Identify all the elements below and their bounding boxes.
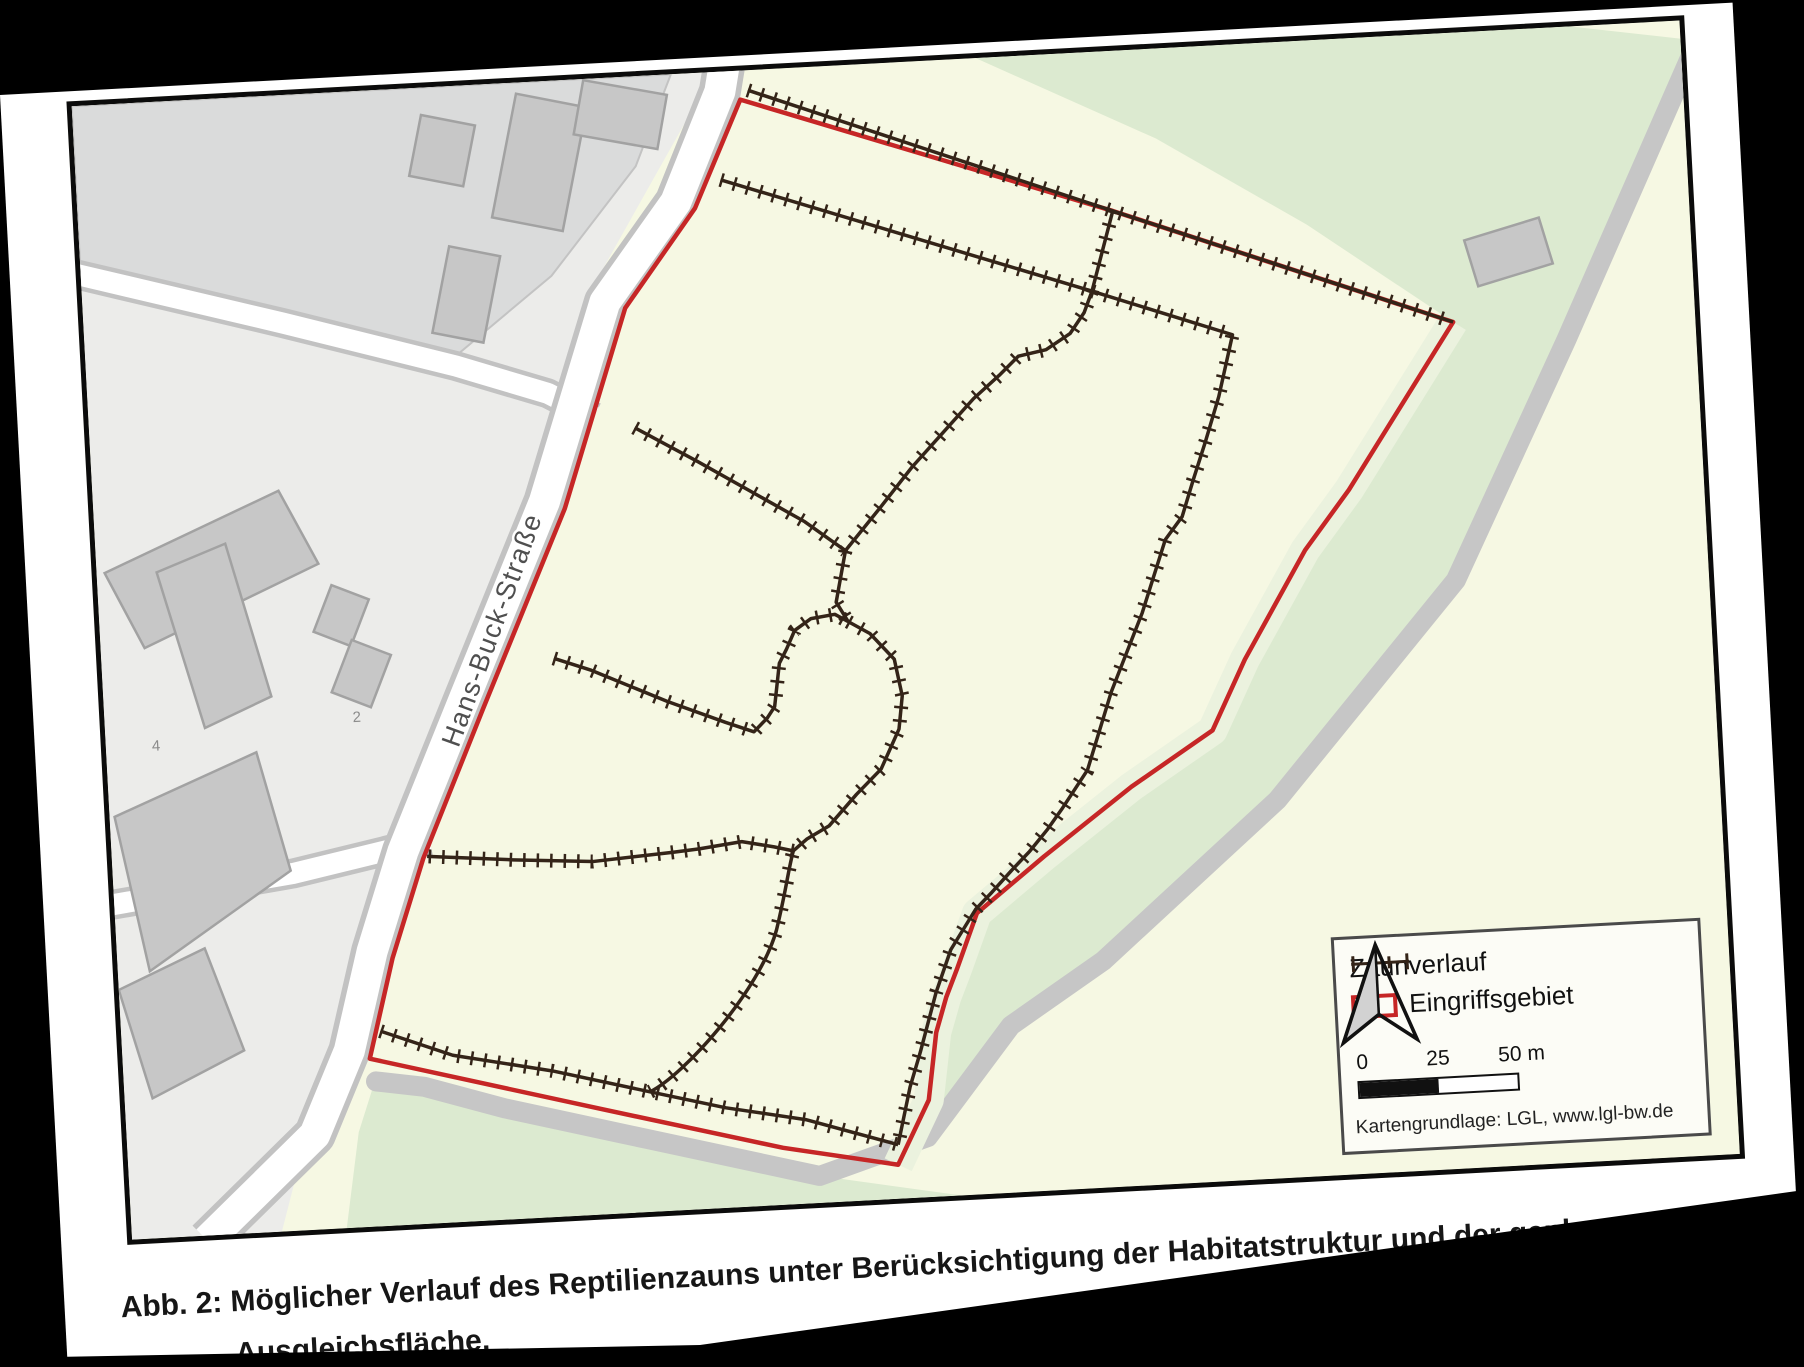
legend-label: Eingriffsgebiet xyxy=(1409,980,1575,1020)
document-page: Hans-Buck-Straße 4 2 xyxy=(0,3,1804,1367)
scanned-document: Hans-Buck-Straße 4 2 xyxy=(0,0,1804,1367)
map-attribution: Kartengrundlage: LGL, www.lgl-bw.de xyxy=(1355,1100,1674,1139)
north-arrow-icon xyxy=(1334,936,1422,1052)
scale-tick: 50 m xyxy=(1498,1041,1546,1067)
map-legend: Zaunverlauf Eingriffsgebiet 0 25 50 m Ka… xyxy=(1331,918,1712,1155)
scale-bar xyxy=(1357,1073,1520,1100)
scale-tick: 25 xyxy=(1426,1046,1451,1071)
building xyxy=(409,115,475,186)
map-figure-frame: Hans-Buck-Straße 4 2 xyxy=(66,15,1745,1245)
house-number: 2 xyxy=(352,709,361,726)
scale-tick: 0 xyxy=(1356,1051,1369,1076)
house-number: 4 xyxy=(151,737,160,754)
